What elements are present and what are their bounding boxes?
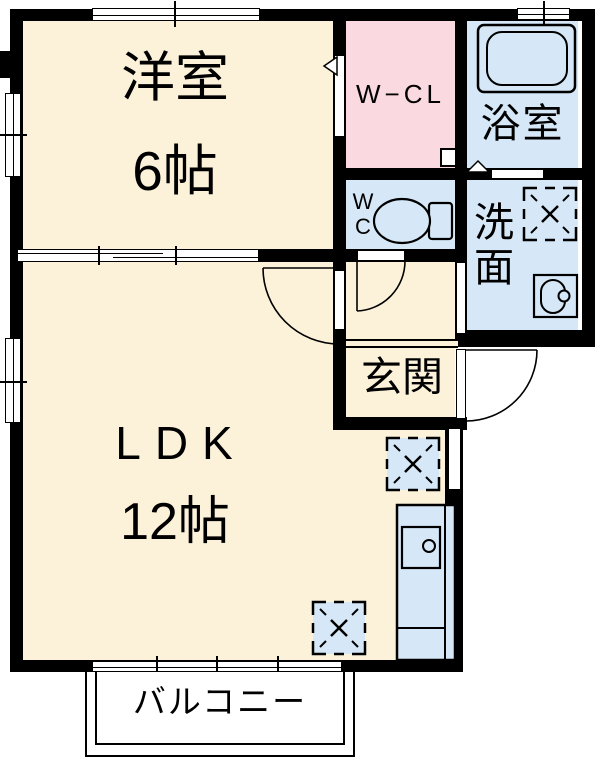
window-tick	[0, 134, 27, 136]
wall-washroom-bottom	[455, 330, 595, 347]
window-tick	[98, 246, 100, 265]
room-hallway	[346, 262, 455, 341]
bathroom-door-opening	[491, 169, 544, 179]
wall-right	[582, 9, 595, 347]
washroom-door-opening	[456, 262, 466, 334]
toilet-label: W C	[348, 189, 378, 239]
window-tick	[0, 381, 27, 383]
toilet-door-opening	[357, 250, 405, 261]
wall-partition-segment	[258, 249, 333, 262]
window	[448, 428, 461, 490]
wall-closet-bottom	[346, 168, 582, 180]
washroom-label-line2: 面	[470, 246, 518, 291]
ldk-size-label: 12帖	[88, 495, 262, 550]
wall-pier	[0, 51, 13, 78]
toilet-label-line2: C	[348, 214, 378, 239]
walk-in-closet-label: W−CL	[346, 81, 455, 108]
pipe-duct	[440, 148, 457, 167]
washroom-label: 洗 面	[470, 201, 518, 291]
window-tick	[543, 1, 545, 25]
bathroom-label: 浴室	[467, 103, 578, 145]
sliding-window	[92, 8, 260, 21]
washroom-label-line1: 洗	[470, 201, 518, 246]
entrance-step-line	[346, 339, 458, 348]
window-tick	[174, 1, 176, 27]
western-room-label: 洋室	[88, 50, 262, 107]
western-room-size-label: 6帖	[88, 143, 262, 201]
balcony: バルコニー	[85, 672, 355, 757]
entrance-label: 玄関	[346, 356, 458, 399]
room-kitchen-area	[333, 430, 446, 660]
sliding-partition	[18, 249, 258, 262]
floor-plan: バルコニー	[0, 0, 600, 767]
front-door-swing-arc	[466, 350, 537, 421]
balcony-label: バルコニー	[87, 685, 353, 720]
ldk-label: LDK	[94, 419, 268, 467]
ldk-door-opening	[334, 270, 345, 330]
window-tick	[175, 246, 177, 265]
closet-door-opening	[334, 55, 345, 137]
toilet-label-line1: W	[348, 189, 378, 214]
